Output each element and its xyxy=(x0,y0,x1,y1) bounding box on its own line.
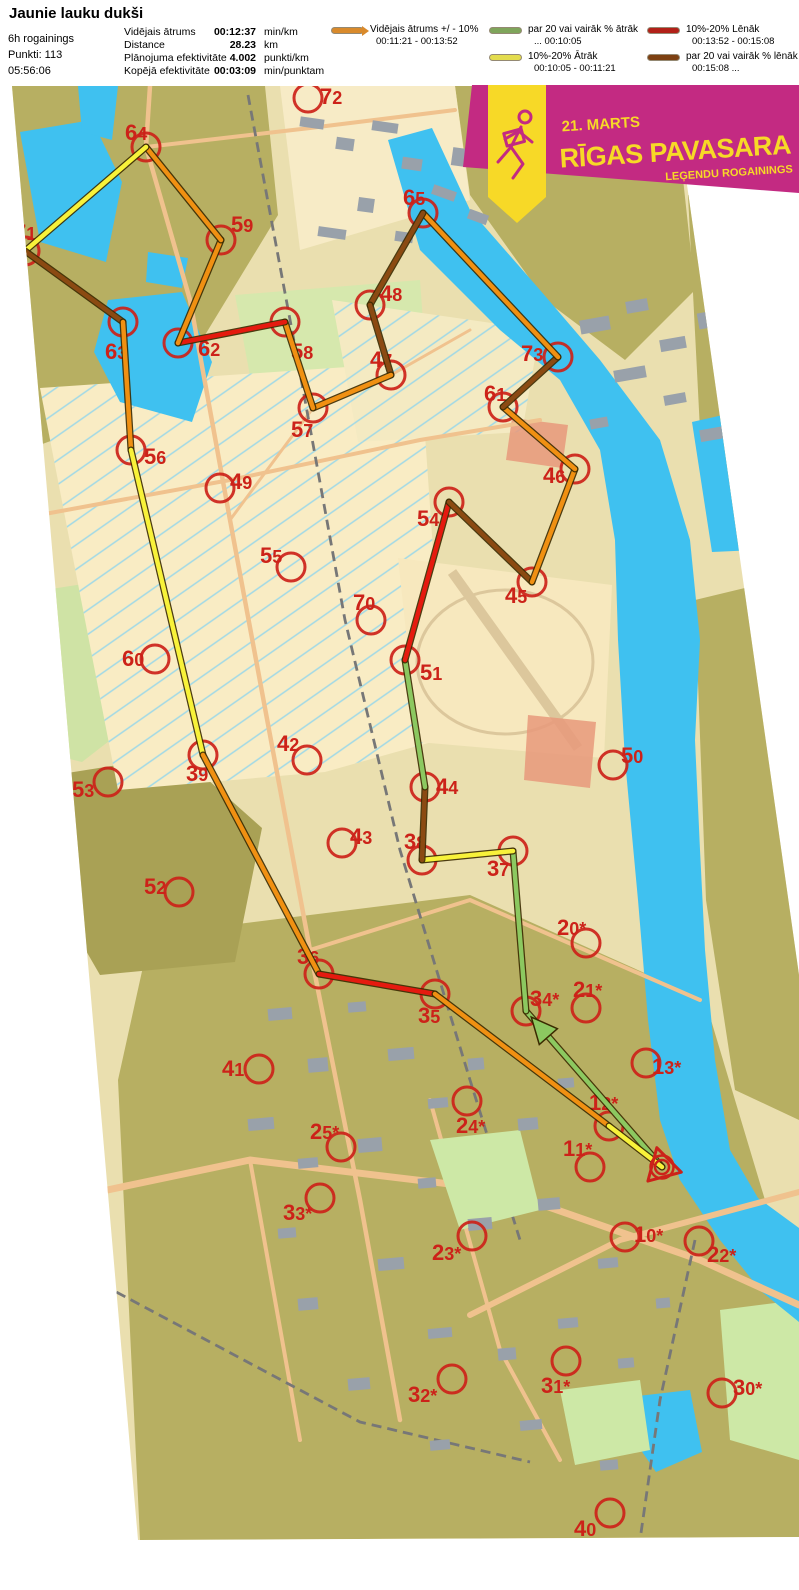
building-block xyxy=(598,1257,619,1269)
control-label: 49 xyxy=(230,469,252,494)
control-label: 41 xyxy=(222,1056,244,1081)
building-block xyxy=(278,1227,297,1239)
page-title: Jaunie lauku dukši xyxy=(9,5,143,22)
building-block xyxy=(520,1419,543,1431)
control-label: 33* xyxy=(283,1200,312,1225)
event-format: 6h rogainings xyxy=(8,33,74,45)
elapsed-time: 05:56:06 xyxy=(8,65,51,77)
building-block xyxy=(307,1057,328,1073)
legend-item-fast20: par 20 vai vairāk % ātrāk ... 00:10:05 xyxy=(528,24,638,47)
legend-label: 10%-20% Ātrāk xyxy=(528,51,616,62)
control-label: 37 xyxy=(487,856,509,881)
control-label: 57 xyxy=(291,417,313,442)
legend-label: par 20 vai vairāk % ātrāk xyxy=(528,24,638,35)
building-block xyxy=(600,1459,619,1471)
building-block xyxy=(428,1327,453,1339)
map: 7264715965584863627347615756464954554570… xyxy=(0,85,799,1545)
control-label: 51 xyxy=(420,660,442,685)
building-block xyxy=(618,1357,635,1368)
control-label: 25* xyxy=(310,1119,339,1144)
legend-range: 00:15:08 ... xyxy=(686,62,798,74)
stat-value: 4.002 xyxy=(186,52,256,64)
control-label: 34* xyxy=(530,986,559,1011)
control-label: 40 xyxy=(574,1516,596,1541)
control-label: 50 xyxy=(621,743,643,768)
legend-item-average: Vidējais ātrums +/ - 10% 00:11:21 - 00:1… xyxy=(370,24,478,47)
stat-value: 00:03:09 xyxy=(186,65,256,77)
building-block xyxy=(430,1439,451,1451)
legend-swatch xyxy=(648,28,679,33)
building-block xyxy=(378,1257,405,1271)
building-block xyxy=(538,1197,561,1211)
building-block xyxy=(451,147,467,167)
control-label: 70 xyxy=(353,590,375,615)
building-block xyxy=(348,1001,367,1013)
legend-range: 00:11:21 - 00:13:52 xyxy=(370,35,478,47)
building-block xyxy=(348,1377,371,1391)
control-label: 60 xyxy=(122,646,144,671)
building-block xyxy=(518,1117,539,1131)
building-block xyxy=(248,1117,275,1131)
building-block xyxy=(558,1317,579,1329)
legend-swatch xyxy=(332,28,363,33)
legend-label: Vidējais ātrums +/ - 10% xyxy=(370,24,478,35)
control-label: 35 xyxy=(418,1003,440,1028)
points-total: Punkti: 113 xyxy=(8,49,62,61)
stat-value: 00:12:37 xyxy=(186,26,256,38)
control-label: 20* xyxy=(557,915,586,940)
control-label: 22* xyxy=(707,1242,736,1267)
route-leg-line xyxy=(422,787,425,860)
control-label: 73 xyxy=(521,341,543,366)
legend-label: par 20 vai vairāk % lēnāk xyxy=(686,51,798,62)
legend-swatch xyxy=(490,55,521,60)
control-label: 11* xyxy=(563,1136,592,1161)
building-block xyxy=(418,1177,437,1189)
legend-range: 00:10:05 - 00:11:21 xyxy=(528,62,616,74)
control-label: 55 xyxy=(260,543,282,568)
control-label: 45 xyxy=(505,583,527,608)
building-block xyxy=(357,1137,382,1153)
control-label: 56 xyxy=(144,444,166,469)
building-block xyxy=(268,1007,293,1021)
control-label: 10* xyxy=(634,1222,663,1247)
control-label: 53 xyxy=(72,777,94,802)
control-label: 72 xyxy=(320,85,342,109)
route-leg-38-44 xyxy=(422,787,425,860)
control-label: 24* xyxy=(456,1113,485,1138)
stat-unit: punkti/km xyxy=(264,52,354,64)
control-label: 61 xyxy=(484,381,506,406)
legend-swatch xyxy=(648,55,679,60)
stat-unit: min/punktam xyxy=(264,65,354,77)
building-block xyxy=(697,311,718,330)
legend-range: 00:13:52 - 00:15:08 xyxy=(686,35,774,47)
control-label: 43 xyxy=(350,824,372,849)
control-label: 30* xyxy=(733,1375,762,1400)
legend-item-fast10: 10%-20% Ātrāk 00:10:05 - 00:11:21 xyxy=(528,51,616,74)
control-label: 32* xyxy=(408,1382,437,1407)
control-label: 21* xyxy=(573,977,602,1002)
control-label: 13* xyxy=(652,1054,681,1079)
legend-label: 10%-20% Lēnāk xyxy=(686,24,774,35)
control-label: 65 xyxy=(403,185,425,210)
building-block xyxy=(468,1057,485,1070)
control-label: 42 xyxy=(277,731,299,756)
building-block xyxy=(298,1157,319,1169)
building-block xyxy=(388,1047,415,1061)
control-label: 52 xyxy=(144,874,166,899)
legend-swatch xyxy=(490,28,521,33)
building-block xyxy=(498,1347,517,1361)
control-label: 31* xyxy=(541,1373,570,1398)
control-label: 64 xyxy=(125,120,147,145)
building-block xyxy=(357,197,375,213)
control-label: 44 xyxy=(436,774,458,799)
building-block xyxy=(428,1097,449,1109)
stat-value: 28.23 xyxy=(186,39,256,51)
stat-unit: km xyxy=(264,39,354,51)
legend-range: ... 00:10:05 xyxy=(528,35,638,47)
control-label: 54 xyxy=(417,506,439,531)
legend-item-slow10: 10%-20% Lēnāk 00:13:52 - 00:15:08 xyxy=(686,24,774,47)
control-label: 59 xyxy=(231,212,253,237)
building-block xyxy=(335,137,354,151)
page: { "header": { "title": "Jaunie lauku duk… xyxy=(0,0,799,1590)
building-block xyxy=(298,1297,319,1311)
control-label: 46 xyxy=(543,463,565,488)
building-block xyxy=(656,1297,671,1308)
control-label: 23* xyxy=(432,1240,461,1265)
legend-item-slow20: par 20 vai vairāk % lēnāk 00:15:08 ... xyxy=(686,51,798,74)
header: Jaunie lauku dukši 6h rogainings Punkti:… xyxy=(0,0,799,85)
